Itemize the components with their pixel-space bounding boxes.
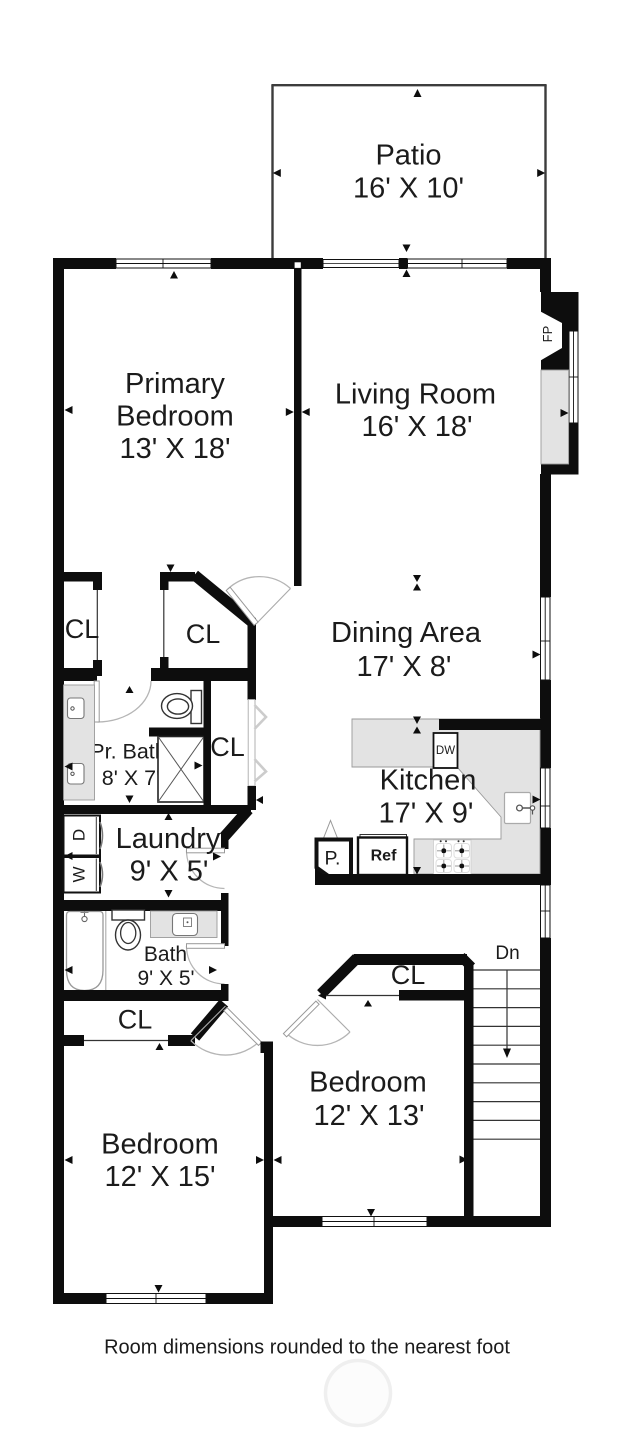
svg-text:13' X 18': 13' X 18'	[119, 433, 230, 465]
svg-text:17' X 8': 17' X 8'	[357, 651, 452, 683]
svg-text:W: W	[70, 866, 89, 882]
svg-text:9' X 5': 9' X 5'	[137, 967, 194, 990]
svg-text:P.: P.	[325, 848, 341, 870]
svg-text:FP: FP	[540, 326, 555, 343]
svg-text:CL: CL	[391, 960, 426, 990]
svg-text:16' X 18': 16' X 18'	[361, 411, 472, 443]
svg-text:Dining Area: Dining Area	[331, 617, 482, 649]
svg-text:Kitchen: Kitchen	[380, 765, 477, 797]
svg-text:Pr. Bath: Pr. Bath	[90, 740, 167, 764]
svg-text:16' X 10': 16' X 10'	[353, 173, 464, 205]
svg-text:12' X 15': 12' X 15'	[104, 1161, 215, 1193]
svg-text:Living Room: Living Room	[335, 379, 496, 411]
svg-text:Bath: Bath	[144, 943, 187, 966]
svg-text:Bedroom: Bedroom	[116, 401, 234, 433]
svg-text:DW: DW	[436, 745, 455, 757]
svg-text:CL: CL	[65, 614, 100, 644]
svg-text:Laundry: Laundry	[116, 823, 221, 855]
svg-text:Dn: Dn	[495, 943, 519, 964]
svg-text:12' X 13': 12' X 13'	[313, 1100, 424, 1132]
svg-text:Ref: Ref	[371, 848, 397, 865]
svg-text:8' X 7': 8' X 7'	[102, 766, 160, 790]
svg-text:Primary: Primary	[125, 368, 225, 400]
svg-text:Patio: Patio	[375, 140, 441, 172]
svg-text:CL: CL	[210, 732, 245, 762]
svg-text:D: D	[70, 829, 89, 841]
svg-text:CL: CL	[186, 619, 221, 649]
svg-text:Bedroom: Bedroom	[309, 1067, 427, 1099]
svg-text:Bedroom: Bedroom	[101, 1129, 219, 1161]
svg-text:17' X 9': 17' X 9'	[379, 798, 474, 830]
svg-text:Room dimensions rounded to the: Room dimensions rounded to the nearest f…	[104, 1337, 510, 1359]
svg-text:CL: CL	[118, 1005, 153, 1035]
svg-text:9' X 5': 9' X 5'	[130, 856, 209, 888]
